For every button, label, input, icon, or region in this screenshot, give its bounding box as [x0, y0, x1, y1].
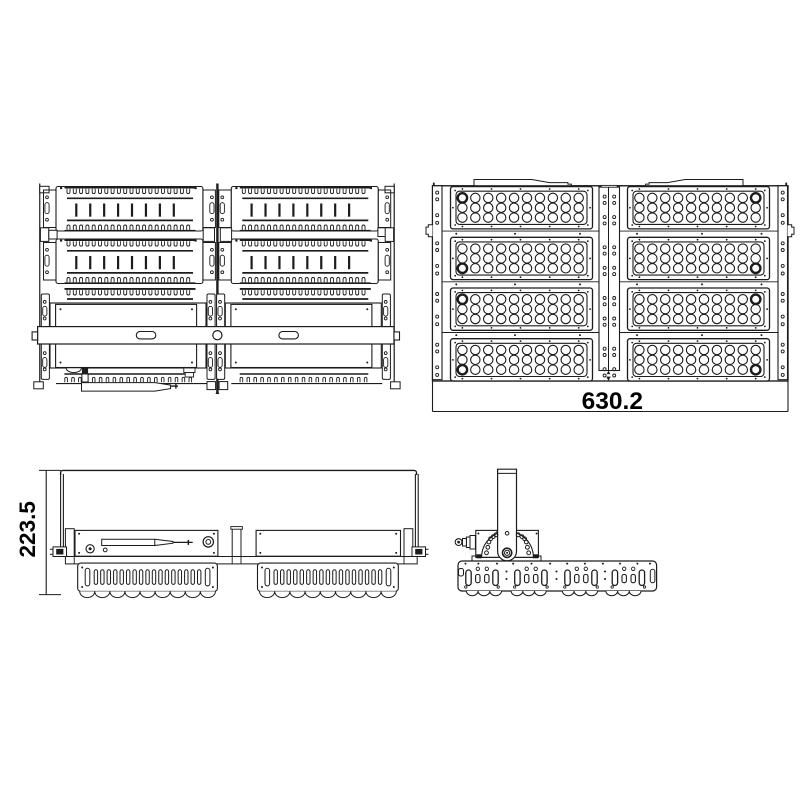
- svg-text:223.5: 223.5: [15, 501, 40, 557]
- svg-text:630.2: 630.2: [582, 388, 643, 415]
